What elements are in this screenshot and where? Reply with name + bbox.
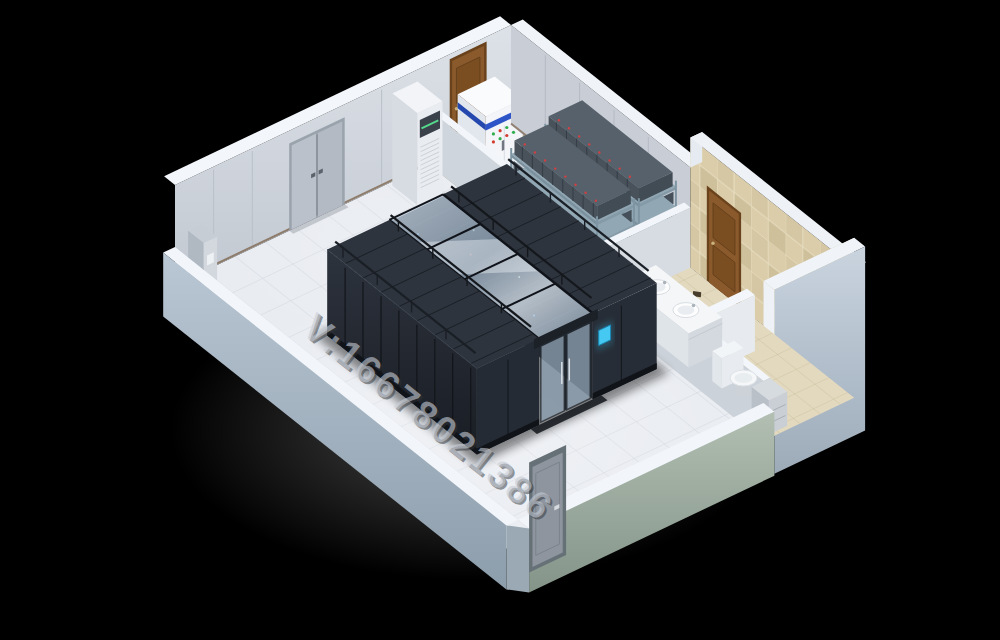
battery-rack-1-battery-led [588,143,590,145]
double-door-leaf [292,134,316,230]
outer-wall-corner [506,525,529,592]
bathroom-door-knob [711,242,714,245]
sink-basin [677,305,694,314]
vestibule-door-knob [455,107,458,110]
battery-rack-1-battery-led [578,135,580,137]
battery-rack-2-battery-led [595,200,597,202]
power-cabinet-handle [502,140,505,151]
power-cabinet-indicator [505,126,508,129]
battery-rack-2-battery-led [524,143,526,145]
battery-rack-2-battery-led [534,151,536,153]
battery-rack-1-battery-led [619,167,621,169]
aisle-door-leaf [541,335,565,422]
battery-rack-1-battery-led [629,176,631,178]
battery-rack-2-battery-led [564,175,566,177]
power-cabinet-indicator [505,134,508,137]
double-door-leaf [318,121,342,217]
battery-rack-1-battery-led [568,127,570,129]
faucet [663,281,667,285]
power-cabinet-indicator [499,129,502,132]
faucet [692,304,696,308]
power-cabinet-indicator [499,137,502,140]
battery-rack-2-battery-led [584,192,586,194]
toilet-seat [735,373,753,383]
battery-rack-1-battery-led [608,159,610,161]
power-cabinet-indicator [512,131,515,134]
power-cabinet-indicator [492,140,495,143]
power-cabinet-indicator [492,132,495,135]
render-canvas: V:16678021386 V:16678021386 [0,0,1000,640]
battery-rack-2-battery-led [574,184,576,186]
room-render: V:16678021386 V:16678021386 [0,0,1000,640]
battery-rack-1-battery-led [598,151,600,153]
battery-rack-2-battery-led [554,167,556,169]
battery-rack-2-battery-led [544,159,546,161]
battery-rack-1-battery-led [558,119,560,121]
aisle-door-leaf [567,323,591,410]
